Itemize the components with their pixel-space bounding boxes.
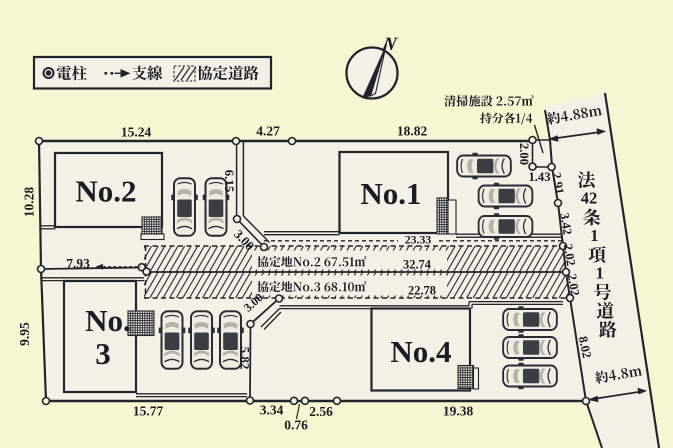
svg-text:2.00: 2.00 <box>517 143 531 165</box>
svg-text:32.74: 32.74 <box>403 258 431 272</box>
svg-text:1.43: 1.43 <box>528 170 550 184</box>
svg-text:4.27: 4.27 <box>256 124 280 139</box>
svg-text:1: 1 <box>596 264 604 283</box>
svg-text:18.82: 18.82 <box>397 124 428 139</box>
svg-text:5.82: 5.82 <box>238 347 253 370</box>
svg-text:15.24: 15.24 <box>121 125 152 140</box>
svg-text:3: 3 <box>95 336 111 371</box>
svg-text:23.33: 23.33 <box>405 233 432 247</box>
svg-text:22.78: 22.78 <box>408 284 436 298</box>
svg-text:10.28: 10.28 <box>22 187 37 218</box>
svg-text:No.: No. <box>85 303 131 338</box>
svg-text:9.95: 9.95 <box>17 322 32 346</box>
svg-text:1: 1 <box>590 226 598 245</box>
svg-text:0.76: 0.76 <box>284 418 308 433</box>
svg-text:3.34: 3.34 <box>260 403 284 418</box>
svg-text:No.1: No.1 <box>360 176 421 211</box>
svg-text:19.38: 19.38 <box>443 404 474 419</box>
svg-text:No.2: No.2 <box>75 174 136 209</box>
svg-text:15.77: 15.77 <box>133 404 164 419</box>
svg-text:No.4: No.4 <box>390 334 451 369</box>
svg-text:2.56: 2.56 <box>309 404 333 419</box>
svg-text:7.93: 7.93 <box>66 256 90 271</box>
svg-text:42: 42 <box>581 189 598 208</box>
svg-text:6.15: 6.15 <box>222 170 237 193</box>
